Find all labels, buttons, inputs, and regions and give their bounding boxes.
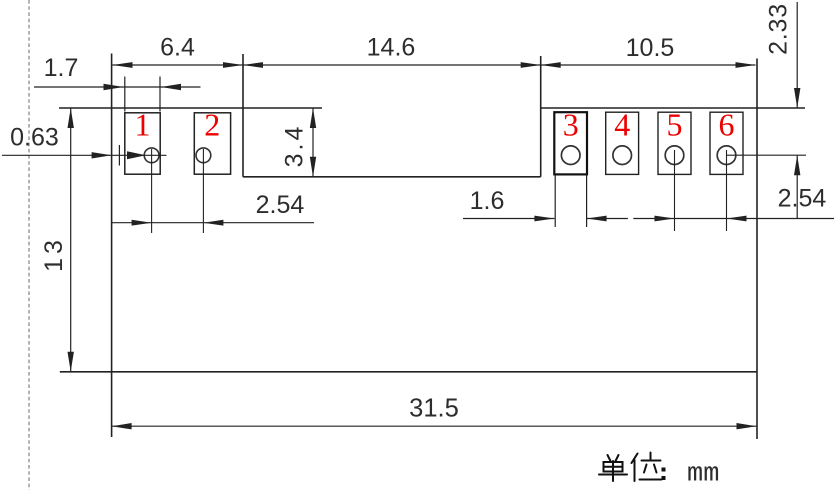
svg-text:5: 5 [667, 107, 683, 143]
svg-text:3: 3 [563, 107, 579, 143]
svg-text:0.63: 0.63 [10, 124, 59, 152]
svg-text:2.33: 2.33 [765, 3, 793, 55]
svg-text:10.5: 10.5 [626, 34, 675, 62]
svg-text:1.6: 1.6 [470, 187, 505, 215]
svg-text:13: 13 [40, 236, 68, 272]
svg-text:14.6: 14.6 [367, 34, 416, 62]
svg-text:2: 2 [204, 107, 220, 143]
svg-text:6.4: 6.4 [160, 34, 195, 62]
svg-text:3.4: 3.4 [281, 124, 309, 168]
svg-text:4: 4 [614, 107, 630, 143]
svg-text:31.5: 31.5 [409, 395, 459, 423]
svg-text:1.7: 1.7 [44, 54, 79, 82]
svg-text:2.54: 2.54 [256, 191, 305, 219]
svg-text:6: 6 [719, 107, 735, 143]
svg-text:1: 1 [135, 107, 151, 143]
svg-text:mm: mm [687, 460, 719, 490]
svg-text:2.54: 2.54 [778, 185, 827, 213]
